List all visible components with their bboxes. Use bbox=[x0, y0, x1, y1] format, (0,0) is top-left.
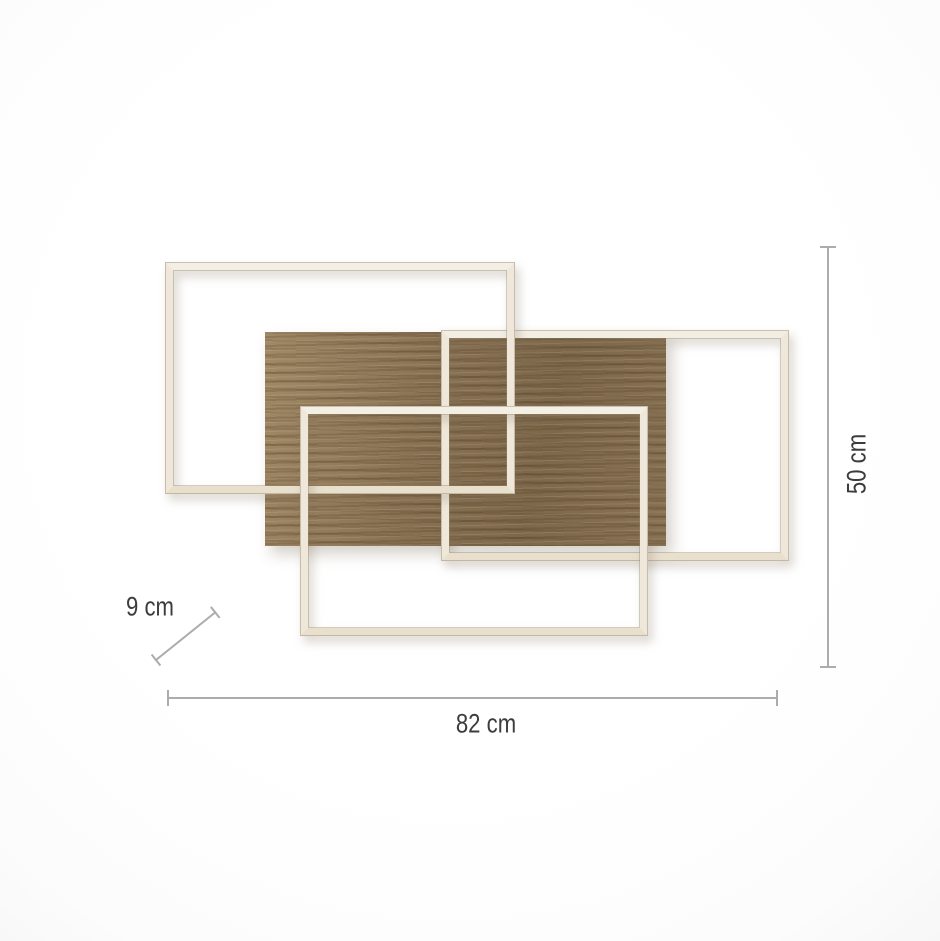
width-dimension-label: 82 cm bbox=[456, 711, 516, 738]
height-measure-line bbox=[827, 246, 829, 668]
frame-bottom bbox=[300, 406, 648, 636]
height-dimension-label: 50 cm bbox=[844, 434, 871, 494]
depth-dimension-label: 9 cm bbox=[126, 594, 174, 621]
product-dimension-diagram: 50 cm 82 cm 9 cm bbox=[0, 0, 940, 941]
width-measure-line bbox=[167, 697, 778, 699]
